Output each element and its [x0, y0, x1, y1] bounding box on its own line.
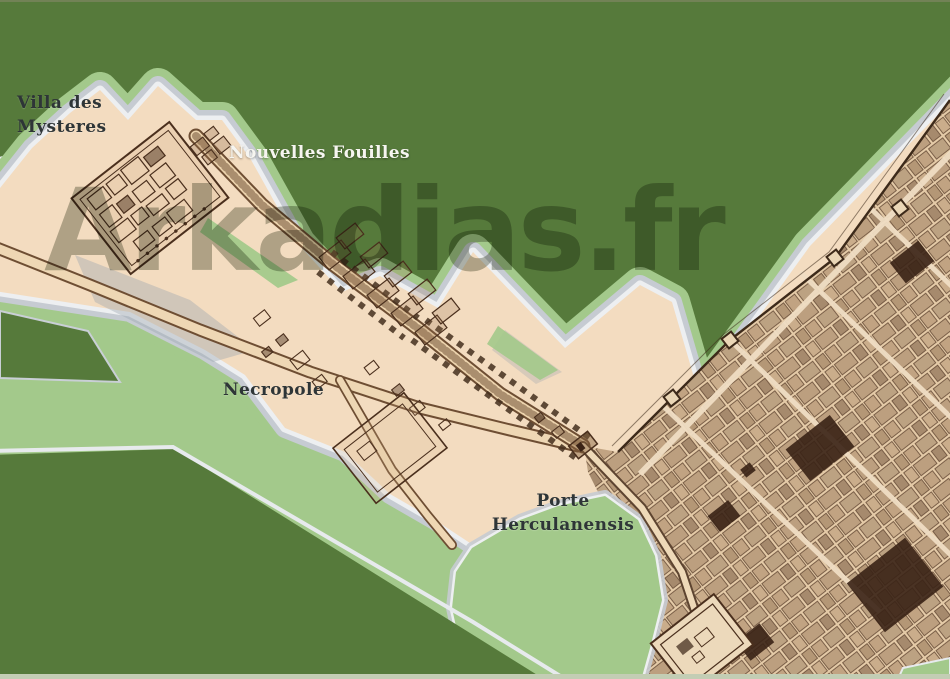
label-line: Nouvelles Fouilles: [229, 142, 410, 166]
bottom-edge-strip: [0, 674, 950, 679]
label-line: Herculanensis: [487, 514, 639, 538]
label-necropole: Necropole: [223, 379, 324, 403]
label-line: Villa des: [17, 92, 106, 116]
pompeii-map-page: Arkadias.fr Villa des Mysteres Nouvelles…: [0, 0, 950, 679]
label-porte-herculanensis: Porte Herculanensis: [487, 490, 639, 538]
label-line: Porte: [487, 490, 639, 514]
label-line: Mysteres: [17, 116, 106, 140]
label-villa-des-mysteres: Villa des Mysteres: [17, 92, 106, 140]
label-nouvelles-fouilles: Nouvelles Fouilles: [229, 142, 410, 166]
label-line: Necropole: [223, 379, 324, 403]
top-edge-strip: [0, 0, 950, 2]
pompeii-map-graphic: [0, 0, 950, 679]
